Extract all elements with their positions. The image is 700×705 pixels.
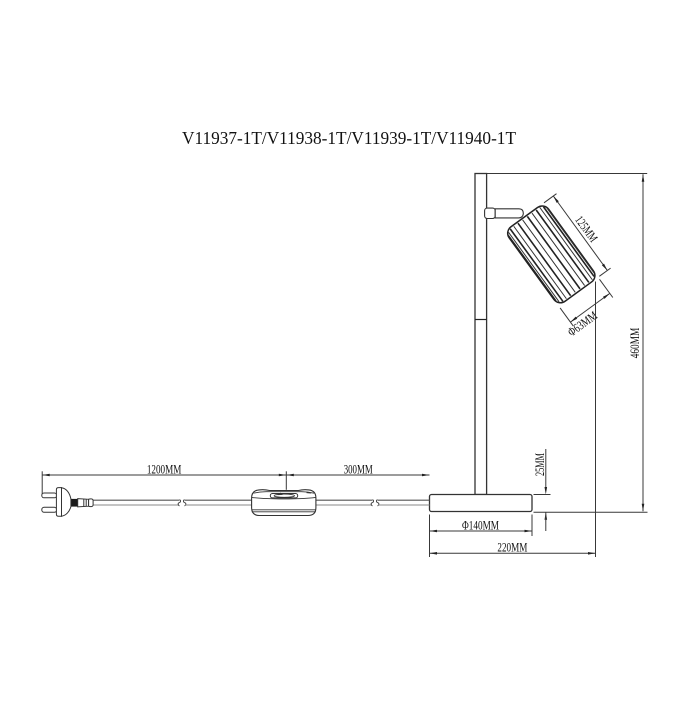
svg-text:Φ140MM: Φ140MM [462, 518, 499, 532]
svg-text:460MM: 460MM [628, 328, 642, 359]
svg-text:300MM: 300MM [344, 463, 373, 477]
svg-text:1200MM: 1200MM [147, 463, 182, 477]
svg-text:220MM: 220MM [497, 540, 527, 554]
svg-text:25MM: 25MM [533, 453, 547, 476]
svg-text:V11937-1T/V11938-1T/V11939-1T/: V11937-1T/V11938-1T/V11939-1T/V11940-1T [182, 128, 516, 148]
